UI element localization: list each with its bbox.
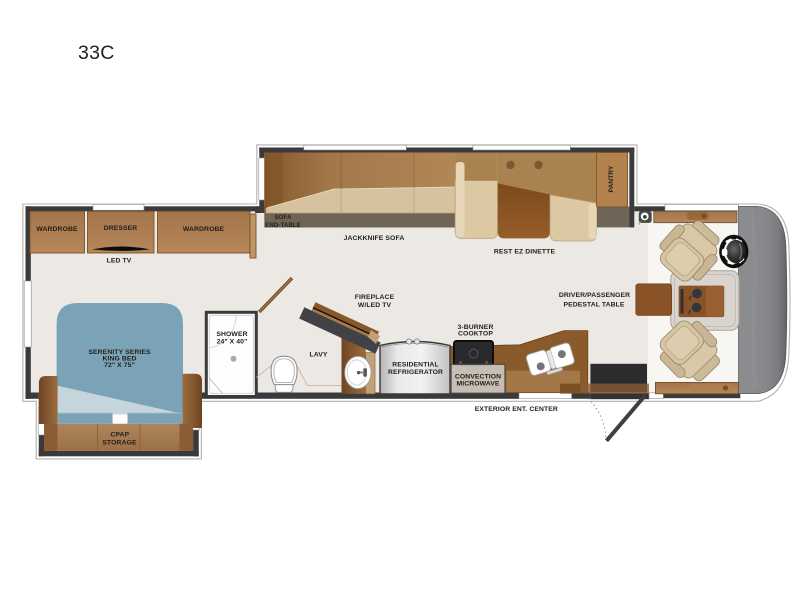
svg-text:LED TV: LED TV: [107, 258, 132, 265]
svg-text:COOKTOP: COOKTOP: [458, 331, 493, 338]
svg-text:MICROWAVE: MICROWAVE: [456, 380, 499, 387]
svg-text:CONVECTION: CONVECTION: [455, 373, 501, 380]
svg-text:PEDESTAL TABLE: PEDESTAL TABLE: [563, 302, 624, 309]
svg-text:END-TABLE: END-TABLE: [265, 222, 301, 229]
svg-text:33C: 33C: [78, 42, 115, 64]
svg-text:FIREPLACE: FIREPLACE: [355, 294, 395, 301]
svg-text:LAVY: LAVY: [309, 351, 327, 358]
svg-text:JACKKNIFE SOFA: JACKKNIFE SOFA: [344, 235, 405, 242]
svg-text:STORAGE: STORAGE: [102, 440, 137, 447]
svg-text:24" X 40": 24" X 40": [217, 338, 248, 345]
svg-text:CPAP: CPAP: [110, 432, 129, 439]
svg-text:REFRIGERATOR: REFRIGERATOR: [388, 369, 443, 376]
svg-text:PANTRY: PANTRY: [608, 165, 615, 192]
svg-text:W/LED TV: W/LED TV: [358, 302, 392, 309]
svg-text:72" X 75": 72" X 75": [104, 362, 135, 369]
svg-text:DRESSER: DRESSER: [104, 225, 138, 232]
svg-text:EXTERIOR ENT. CENTER: EXTERIOR ENT. CENTER: [475, 406, 558, 413]
svg-text:WARDROBE: WARDROBE: [36, 226, 78, 233]
svg-text:SHOWER: SHOWER: [216, 331, 247, 338]
svg-text:DRIVER/PASSENGER: DRIVER/PASSENGER: [559, 292, 630, 299]
svg-text:WARDROBE: WARDROBE: [183, 226, 225, 233]
svg-text:RESIDENTIAL: RESIDENTIAL: [392, 362, 438, 369]
svg-text:REST EZ DINETTE: REST EZ DINETTE: [494, 248, 556, 255]
svg-text:SOFA: SOFA: [275, 214, 292, 221]
